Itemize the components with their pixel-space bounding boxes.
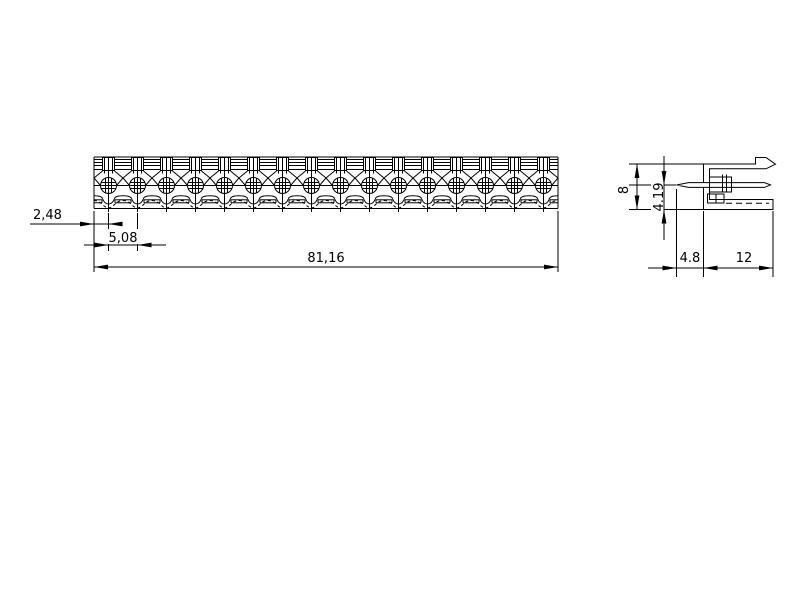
side-view-housing [677, 158, 776, 210]
side-view-pin [677, 183, 771, 188]
dim-pitch: 5,08 [84, 231, 166, 247]
technical-drawing: 2,48 5,08 81,16 [0, 0, 800, 600]
dim-height: 8 [617, 164, 639, 210]
dim-pin-center-to-base: 4.19 [652, 156, 667, 240]
dim-body-depth: 12 [736, 251, 773, 270]
dim-pin-center-to-base-label: 4.19 [652, 183, 667, 212]
dim-body-depth-label: 12 [736, 251, 753, 266]
dim-total-length-label: 81,16 [307, 251, 344, 266]
front-view-dimensions: 2,48 5,08 81,16 [30, 208, 558, 272]
dim-pitch-label: 5,08 [109, 231, 138, 246]
front-view: 2,48 5,08 81,16 [30, 157, 558, 272]
dim-height-label: 8 [617, 186, 632, 194]
technical-drawing-page: 2,48 5,08 81,16 [0, 0, 800, 600]
pin-row-pattern [94, 157, 558, 213]
side-view: 8 4.19 4.8 [617, 156, 776, 277]
dim-edge-to-first-pin-label: 2,48 [33, 208, 62, 223]
dim-pin-protrusion: 4.8 [663, 251, 718, 270]
dim-pin-protrusion-label: 4.8 [680, 251, 701, 266]
dim-total-length: 81,16 [94, 251, 558, 269]
side-view-dimensions: 8 4.19 4.8 [617, 156, 773, 277]
